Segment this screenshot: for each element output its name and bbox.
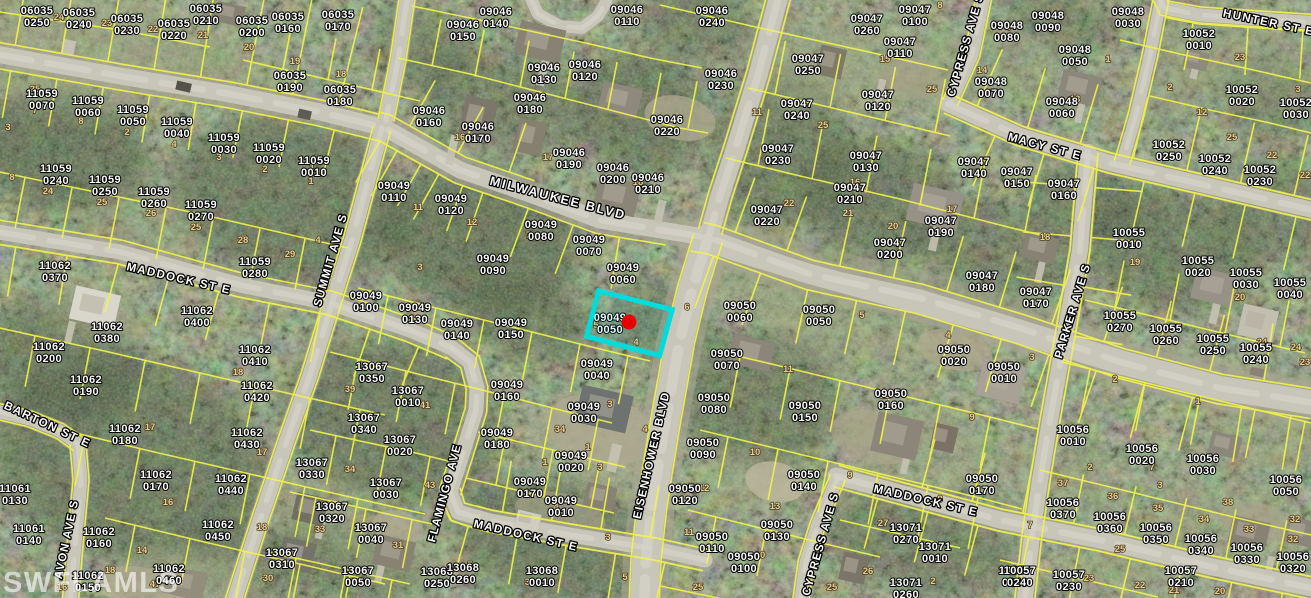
svg-text:0220: 0220 — [654, 126, 680, 138]
svg-text:4: 4 — [642, 424, 648, 435]
svg-text:0150: 0150 — [498, 329, 524, 341]
svg-text:09047: 09047 — [862, 89, 895, 101]
svg-text:11062: 11062 — [91, 321, 123, 333]
svg-text:06035: 06035 — [236, 15, 269, 27]
svg-text:0240: 0240 — [66, 19, 92, 31]
svg-text:0070: 0070 — [714, 360, 740, 372]
svg-text:0280: 0280 — [242, 268, 268, 280]
svg-text:3: 3 — [5, 122, 10, 133]
svg-text:0270: 0270 — [893, 534, 919, 546]
svg-text:0030: 0030 — [571, 413, 597, 425]
svg-text:0020: 0020 — [1129, 455, 1155, 467]
svg-text:0170: 0170 — [465, 133, 491, 145]
svg-text:25: 25 — [191, 222, 202, 233]
svg-text:11062: 11062 — [33, 341, 65, 353]
svg-text:09047: 09047 — [925, 215, 958, 227]
svg-text:0010: 0010 — [395, 397, 421, 409]
svg-text:22: 22 — [1267, 150, 1278, 161]
svg-text:25: 25 — [1115, 544, 1126, 555]
svg-text:0450: 0450 — [205, 531, 231, 543]
svg-text:11061: 11061 — [13, 523, 45, 535]
svg-text:19: 19 — [1130, 257, 1141, 268]
svg-text:0090: 0090 — [480, 265, 506, 277]
svg-text:13067: 13067 — [384, 434, 417, 446]
svg-text:22: 22 — [148, 24, 159, 35]
svg-text:0220: 0220 — [754, 216, 780, 228]
svg-text:11: 11 — [752, 107, 763, 118]
svg-text:10052: 10052 — [1199, 153, 1232, 165]
svg-text:0240: 0240 — [699, 17, 725, 29]
svg-text:0040: 0040 — [584, 370, 610, 382]
svg-text:09050: 09050 — [711, 348, 744, 360]
svg-text:0010: 0010 — [991, 373, 1017, 385]
svg-text:10055: 10055 — [1230, 267, 1263, 279]
svg-text:0210: 0210 — [635, 184, 661, 196]
svg-text:0110: 0110 — [699, 543, 724, 555]
svg-text:06035: 06035 — [158, 18, 191, 30]
svg-text:09050: 09050 — [988, 361, 1021, 373]
svg-text:43: 43 — [425, 480, 436, 491]
svg-text:14: 14 — [137, 545, 148, 556]
svg-text:09049: 09049 — [568, 401, 601, 413]
svg-text:0060: 0060 — [75, 107, 101, 119]
svg-text:10052: 10052 — [1183, 28, 1216, 40]
svg-text:09046: 09046 — [705, 68, 738, 80]
svg-text:28: 28 — [238, 235, 249, 246]
svg-text:13071: 13071 — [890, 522, 923, 534]
svg-text:9: 9 — [847, 470, 852, 481]
svg-text:09049: 09049 — [435, 193, 468, 205]
svg-text:22: 22 — [1300, 170, 1311, 181]
svg-text:09047: 09047 — [1001, 166, 1034, 178]
svg-text:0160: 0160 — [878, 400, 904, 412]
svg-text:09050: 09050 — [938, 344, 971, 356]
svg-text:0020: 0020 — [558, 462, 584, 474]
svg-text:0020: 0020 — [387, 446, 413, 458]
svg-text:21: 21 — [843, 208, 854, 219]
svg-text:12: 12 — [1197, 107, 1208, 118]
svg-text:0240: 0240 — [43, 175, 69, 187]
svg-text:23: 23 — [1084, 573, 1095, 584]
svg-text:0020: 0020 — [941, 356, 967, 368]
svg-text:09049: 09049 — [477, 253, 510, 265]
svg-text:11062: 11062 — [181, 305, 213, 317]
svg-text:10055: 10055 — [1197, 333, 1230, 345]
svg-text:0170: 0170 — [1023, 298, 1049, 310]
svg-text:09049: 09049 — [573, 234, 606, 246]
svg-text:0200: 0200 — [36, 353, 62, 365]
svg-text:32: 32 — [1290, 514, 1301, 525]
svg-text:34: 34 — [345, 464, 356, 475]
svg-text:11059: 11059 — [40, 163, 72, 175]
svg-text:0190: 0190 — [277, 82, 303, 94]
svg-text:09047: 09047 — [884, 36, 917, 48]
svg-text:0250: 0250 — [24, 17, 50, 29]
svg-text:09049: 09049 — [491, 379, 524, 391]
svg-text:0200: 0200 — [239, 27, 265, 39]
svg-text:11: 11 — [413, 202, 424, 213]
svg-text:10057: 10057 — [1165, 565, 1198, 577]
svg-text:09048: 09048 — [1032, 10, 1065, 22]
svg-text:09048: 09048 — [1059, 44, 1092, 56]
svg-text:10057: 10057 — [1053, 569, 1086, 581]
svg-text:18: 18 — [1040, 232, 1051, 243]
svg-text:3: 3 — [597, 462, 602, 473]
svg-text:11059: 11059 — [161, 116, 193, 128]
svg-text:11062: 11062 — [231, 427, 263, 439]
svg-text:0070: 0070 — [576, 246, 602, 258]
svg-text:38: 38 — [1223, 497, 1234, 508]
svg-text:11059: 11059 — [72, 95, 104, 107]
svg-text:8: 8 — [9, 172, 14, 183]
svg-text:0080: 0080 — [994, 32, 1020, 44]
svg-text:0140: 0140 — [791, 481, 817, 493]
svg-text:18: 18 — [257, 522, 268, 533]
svg-text:0030: 0030 — [1233, 279, 1259, 291]
svg-text:0420: 0420 — [244, 392, 270, 404]
svg-text:09046: 09046 — [611, 4, 644, 16]
svg-text:22: 22 — [1135, 580, 1146, 591]
svg-text:39: 39 — [345, 384, 356, 395]
svg-text:10: 10 — [750, 447, 761, 458]
svg-text:0060: 0060 — [727, 312, 753, 324]
svg-text:24: 24 — [1291, 342, 1302, 353]
svg-text:13: 13 — [770, 501, 781, 512]
svg-text:0090: 0090 — [690, 449, 716, 461]
svg-text:09049: 09049 — [545, 495, 578, 507]
svg-text:09050: 09050 — [966, 473, 999, 485]
svg-text:0120: 0120 — [438, 205, 464, 217]
svg-text:10056: 10056 — [1126, 443, 1159, 455]
svg-text:0250: 0250 — [795, 65, 821, 77]
svg-text:0260: 0260 — [854, 25, 880, 37]
svg-text:10052: 10052 — [1153, 139, 1186, 151]
svg-text:09049: 09049 — [514, 476, 547, 488]
svg-text:06035: 06035 — [63, 7, 96, 19]
svg-text:13067: 13067 — [296, 457, 329, 469]
svg-text:11059: 11059 — [253, 142, 285, 154]
svg-text:0010: 0010 — [1116, 239, 1142, 251]
svg-text:0230: 0230 — [114, 25, 140, 37]
svg-text:0180: 0180 — [327, 96, 353, 108]
svg-text:3: 3 — [605, 532, 610, 543]
svg-text:0190: 0190 — [928, 227, 954, 239]
svg-text:10057: 10057 — [1004, 565, 1037, 577]
svg-text:09046: 09046 — [480, 6, 513, 18]
svg-text:09050: 09050 — [669, 483, 702, 495]
svg-text:09048: 09048 — [975, 76, 1008, 88]
svg-text:0010: 0010 — [922, 553, 948, 565]
svg-text:0130: 0130 — [853, 162, 879, 174]
svg-text:10055: 10055 — [1150, 323, 1183, 335]
svg-text:09050: 09050 — [687, 437, 720, 449]
svg-text:06035: 06035 — [324, 84, 357, 96]
svg-text:18: 18 — [336, 69, 347, 80]
svg-text:0310: 0310 — [269, 559, 295, 571]
svg-text:09046: 09046 — [569, 59, 602, 71]
svg-text:18: 18 — [233, 367, 244, 378]
svg-text:11061: 11061 — [0, 483, 31, 495]
svg-text:13067: 13067 — [356, 361, 389, 373]
svg-text:0260: 0260 — [1153, 335, 1179, 347]
svg-text:1: 1 — [542, 457, 548, 468]
svg-text:0010: 0010 — [529, 577, 555, 589]
svg-text:0140: 0140 — [483, 18, 509, 30]
svg-text:25: 25 — [827, 582, 838, 593]
svg-text:09049: 09049 — [350, 290, 383, 302]
svg-text:09047: 09047 — [792, 53, 825, 65]
svg-text:09046: 09046 — [632, 172, 665, 184]
svg-text:09049: 09049 — [481, 427, 514, 439]
svg-text:35: 35 — [1153, 503, 1164, 514]
svg-text:10056: 10056 — [1047, 497, 1080, 509]
svg-text:0080: 0080 — [528, 231, 554, 243]
svg-text:09047: 09047 — [751, 204, 784, 216]
svg-text:0160: 0160 — [1051, 190, 1077, 202]
svg-text:27: 27 — [878, 518, 889, 529]
svg-text:2: 2 — [930, 576, 935, 587]
svg-text:20: 20 — [1215, 586, 1226, 597]
svg-text:0020: 0020 — [256, 154, 282, 166]
svg-text:11059: 11059 — [185, 199, 217, 211]
svg-text:0320: 0320 — [1280, 563, 1306, 575]
svg-text:09046: 09046 — [696, 5, 729, 17]
svg-text:0120: 0120 — [865, 101, 891, 113]
svg-text:33: 33 — [1244, 524, 1255, 535]
svg-text:3: 3 — [607, 399, 612, 410]
svg-text:09049: 09049 — [441, 318, 474, 330]
svg-text:0240: 0240 — [1007, 577, 1033, 589]
svg-text:09046: 09046 — [651, 114, 684, 126]
svg-text:10052: 10052 — [1280, 97, 1311, 109]
svg-text:09048: 09048 — [1046, 96, 1079, 108]
svg-text:4: 4 — [945, 330, 951, 341]
svg-text:10056: 10056 — [1187, 453, 1220, 465]
svg-text:11059: 11059 — [298, 155, 330, 167]
svg-text:0050: 0050 — [345, 577, 371, 589]
svg-text:13068: 13068 — [447, 562, 480, 574]
svg-text:09048: 09048 — [1112, 6, 1145, 18]
svg-text:6: 6 — [684, 302, 689, 313]
svg-text:25: 25 — [818, 120, 829, 131]
svg-text:0110: 0110 — [381, 192, 406, 204]
svg-text:10055: 10055 — [1274, 277, 1307, 289]
svg-text:0240: 0240 — [1243, 354, 1269, 366]
svg-text:09049: 09049 — [607, 262, 640, 274]
svg-text:37: 37 — [1058, 478, 1069, 489]
svg-text:10055: 10055 — [1113, 227, 1146, 239]
svg-text:09046: 09046 — [597, 162, 630, 174]
svg-text:0220: 0220 — [161, 30, 187, 42]
svg-text:0180: 0180 — [112, 435, 138, 447]
svg-text:9: 9 — [969, 412, 974, 423]
svg-text:11059: 11059 — [89, 174, 121, 186]
svg-text:11059: 11059 — [117, 104, 149, 116]
svg-text:09047: 09047 — [874, 237, 907, 249]
svg-text:0030: 0030 — [211, 144, 237, 156]
svg-text:26: 26 — [863, 566, 874, 577]
svg-text:0230: 0230 — [765, 155, 791, 167]
svg-text:09050: 09050 — [789, 400, 822, 412]
svg-text:2: 2 — [1112, 374, 1117, 385]
svg-text:0240: 0240 — [1202, 165, 1228, 177]
svg-text:0270: 0270 — [1107, 322, 1133, 334]
svg-text:0060: 0060 — [1049, 108, 1075, 120]
svg-text:10056: 10056 — [1140, 522, 1173, 534]
svg-text:0100: 0100 — [731, 563, 757, 575]
svg-text:0200: 0200 — [877, 249, 903, 261]
svg-text:41: 41 — [420, 400, 431, 411]
svg-text:25: 25 — [693, 582, 704, 593]
svg-text:13067: 13067 — [370, 477, 403, 489]
svg-text:0170: 0170 — [517, 488, 543, 500]
svg-text:0160: 0160 — [86, 538, 112, 550]
svg-text:06035: 06035 — [190, 3, 223, 15]
svg-text:09046: 09046 — [413, 105, 446, 117]
svg-text:0330: 0330 — [1234, 554, 1260, 566]
svg-text:09050: 09050 — [788, 469, 821, 481]
svg-text:29: 29 — [285, 249, 296, 260]
svg-text:3: 3 — [417, 262, 422, 273]
svg-text:3: 3 — [1295, 84, 1300, 95]
svg-text:0230: 0230 — [708, 80, 734, 92]
svg-text:0150: 0150 — [1004, 178, 1030, 190]
svg-text:0040: 0040 — [164, 128, 190, 140]
svg-text:11062: 11062 — [109, 423, 141, 435]
svg-text:0200: 0200 — [600, 174, 626, 186]
svg-text:0260: 0260 — [450, 574, 476, 586]
svg-text:3: 3 — [1029, 352, 1034, 363]
svg-text:24: 24 — [43, 186, 54, 197]
svg-text:0040: 0040 — [358, 534, 384, 546]
svg-text:13067: 13067 — [348, 412, 381, 424]
svg-text:11059: 11059 — [138, 186, 170, 198]
svg-text:33: 33 — [315, 524, 326, 535]
svg-text:09049: 09049 — [525, 219, 558, 231]
svg-text:0070: 0070 — [978, 88, 1004, 100]
svg-text:13067: 13067 — [266, 547, 299, 559]
svg-text:20: 20 — [244, 42, 255, 53]
svg-text:0230: 0230 — [1247, 176, 1273, 188]
svg-text:0030: 0030 — [1115, 18, 1141, 30]
svg-text:0260: 0260 — [141, 198, 167, 210]
svg-text:0130: 0130 — [2, 495, 28, 507]
svg-text:11: 11 — [684, 527, 695, 538]
svg-text:11062: 11062 — [202, 519, 234, 531]
svg-text:09047: 09047 — [1048, 178, 1081, 190]
svg-text:13071: 13071 — [890, 577, 923, 589]
svg-text:09050: 09050 — [696, 531, 729, 543]
svg-text:09049: 09049 — [495, 317, 528, 329]
svg-text:4: 4 — [315, 235, 321, 246]
svg-text:10055: 10055 — [1104, 310, 1137, 322]
svg-text:06035: 06035 — [111, 13, 144, 25]
svg-text:09050: 09050 — [803, 304, 836, 316]
svg-text:13067: 13067 — [392, 385, 425, 397]
svg-text:12: 12 — [467, 217, 478, 228]
svg-text:22: 22 — [784, 198, 795, 209]
svg-text:10056: 10056 — [1185, 533, 1218, 545]
svg-text:25: 25 — [97, 197, 108, 208]
svg-text:0140: 0140 — [16, 535, 42, 547]
svg-text:0060: 0060 — [610, 274, 636, 286]
svg-text:23: 23 — [1235, 52, 1246, 63]
svg-text:11062: 11062 — [215, 473, 247, 485]
svg-text:16: 16 — [163, 497, 174, 508]
svg-text:0020: 0020 — [1229, 96, 1255, 108]
svg-text:0250: 0250 — [424, 578, 450, 590]
svg-text:09047: 09047 — [966, 270, 999, 282]
svg-text:09046: 09046 — [462, 121, 495, 133]
svg-text:0170: 0170 — [969, 485, 995, 497]
svg-text:2: 2 — [124, 127, 129, 138]
svg-text:06035: 06035 — [272, 11, 305, 23]
svg-text:0440: 0440 — [218, 485, 244, 497]
svg-text:3: 3 — [1157, 480, 1162, 491]
svg-text:0040: 0040 — [1277, 289, 1303, 301]
svg-text:0010: 0010 — [1060, 436, 1086, 448]
svg-text:20: 20 — [888, 221, 899, 232]
svg-text:0050: 0050 — [1273, 486, 1299, 498]
svg-text:0100: 0100 — [902, 16, 928, 28]
svg-text:25: 25 — [1227, 132, 1238, 143]
svg-text:1: 1 — [1195, 396, 1201, 407]
svg-text:0180: 0180 — [969, 282, 995, 294]
svg-text:34: 34 — [555, 424, 566, 435]
svg-text:0210: 0210 — [1168, 577, 1194, 589]
svg-text:0370: 0370 — [42, 272, 68, 284]
svg-text:0210: 0210 — [193, 15, 219, 27]
svg-text:0030: 0030 — [1190, 465, 1216, 477]
svg-text:4: 4 — [171, 139, 177, 150]
svg-text:13067: 13067 — [355, 522, 388, 534]
svg-text:09050: 09050 — [724, 300, 757, 312]
svg-text:0170: 0170 — [325, 21, 351, 33]
svg-text:10052: 10052 — [1244, 164, 1277, 176]
svg-text:0170: 0170 — [143, 481, 169, 493]
svg-text:09047: 09047 — [781, 98, 814, 110]
svg-text:10055: 10055 — [1182, 255, 1215, 267]
svg-text:0350: 0350 — [1143, 534, 1169, 546]
svg-text:8: 8 — [937, 0, 942, 11]
svg-text:13068: 13068 — [526, 565, 559, 577]
svg-text:11059: 11059 — [26, 88, 58, 100]
svg-text:0050: 0050 — [120, 116, 146, 128]
svg-text:2: 2 — [1087, 462, 1092, 473]
svg-text:0010: 0010 — [301, 167, 327, 179]
svg-text:0250: 0250 — [92, 186, 118, 198]
svg-text:0230: 0230 — [1056, 581, 1082, 593]
svg-text:0160: 0160 — [416, 117, 442, 129]
svg-text:16: 16 — [455, 132, 466, 143]
svg-text:0070: 0070 — [29, 100, 55, 112]
svg-text:0260: 0260 — [893, 589, 919, 598]
svg-text:0360: 0360 — [1097, 523, 1123, 535]
svg-text:0030: 0030 — [373, 489, 399, 501]
svg-text:10056: 10056 — [1231, 542, 1264, 554]
svg-text:0130: 0130 — [531, 74, 557, 86]
svg-text:0210: 0210 — [837, 194, 863, 206]
svg-text:0370: 0370 — [1050, 509, 1076, 521]
svg-text:06035: 06035 — [322, 9, 355, 21]
svg-text:0380: 0380 — [94, 333, 120, 345]
svg-text:0400: 0400 — [184, 317, 210, 329]
svg-text:09046: 09046 — [553, 147, 586, 159]
svg-text:25: 25 — [927, 84, 938, 95]
svg-text:06035: 06035 — [274, 70, 307, 82]
svg-text:11062: 11062 — [140, 469, 172, 481]
svg-text:31: 31 — [393, 540, 404, 551]
